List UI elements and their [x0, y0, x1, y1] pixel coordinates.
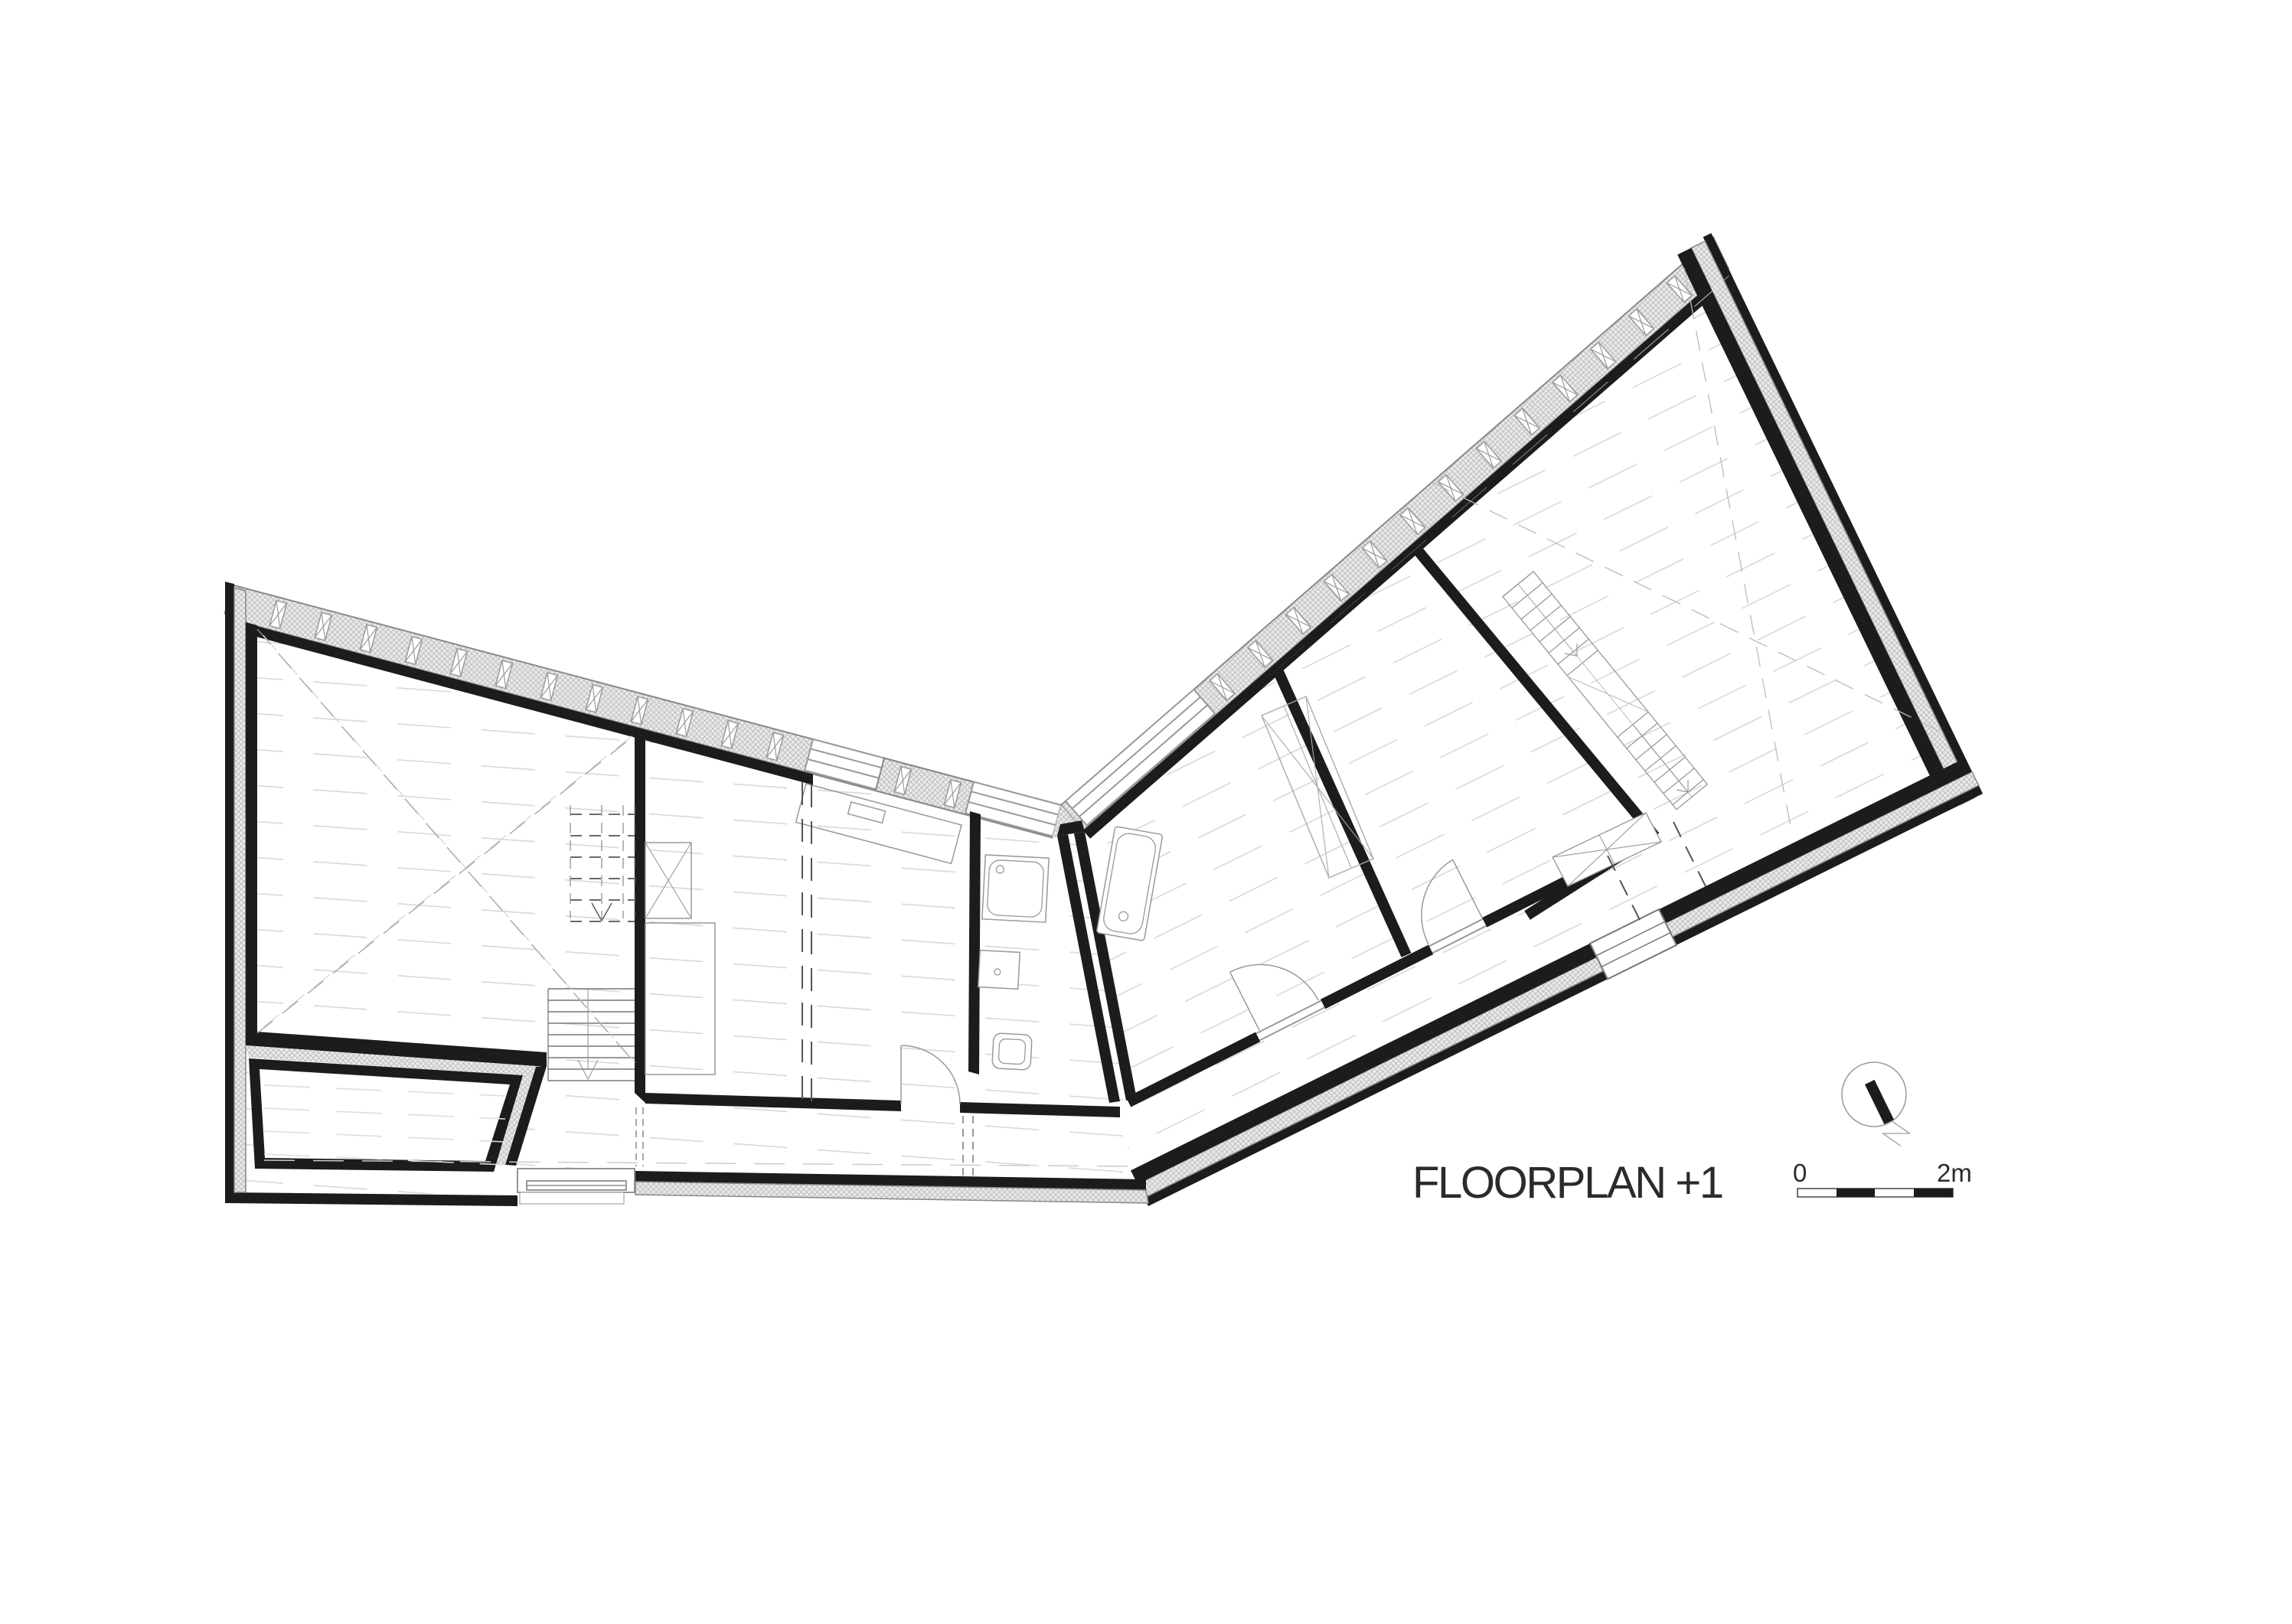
svg-text:FLOORPLAN +1: FLOORPLAN +1: [1412, 1158, 1722, 1208]
svg-text:2m: 2m: [1937, 1159, 1972, 1187]
svg-text:0: 0: [1793, 1159, 1807, 1187]
